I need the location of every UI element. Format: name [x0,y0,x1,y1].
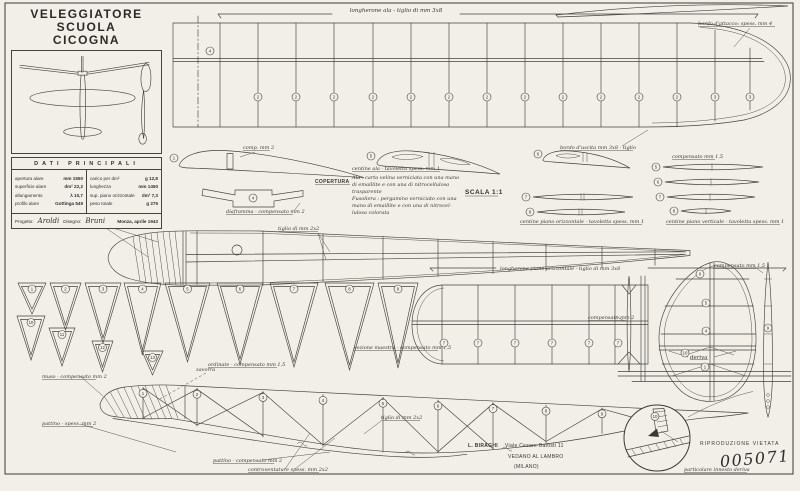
wing-plan-view: longherone ala - tiglio di mm 3x8 bordo … [173,5,790,127]
part-number-badge: 5 [184,285,192,293]
data-table: DATI PRINCIPALI apertura alaremm 1550sup… [11,157,162,229]
side-nose-note: muso - compensato mm 2 [42,374,107,380]
data-label: apertura alare [15,176,44,181]
part-number-badge: 9 [764,324,772,332]
title-line-2: CICOGNA [8,34,165,47]
part-number-badge: 2 [597,93,605,101]
part-number-badge: 2 [673,93,681,101]
covering-title: COPERTURA [315,179,349,185]
part-number-badge: 12 [99,344,107,352]
formers-note: ordinate - compensato mm 1,5 [208,362,285,368]
data-table-row: apertura alaremm 1550 [15,176,83,181]
part-number-badge: 3 [746,93,754,101]
fin-rib-sections [663,164,763,213]
data-table-row: lunghezzamm 1450 [90,184,158,189]
fin-root-section [618,276,640,372]
dihedral-brace-note: diaframma - compensato mm 2 [226,209,305,215]
fin-side-note: compensato mm 1,5 [714,263,765,269]
part-number-badge: 5 [652,163,660,171]
data-value: Gottinga 549 [55,201,83,206]
part-number: 10 [29,320,34,325]
part-number-badge: 2 [369,93,377,101]
part-number-badge: 2 [62,285,70,293]
fin-label: deriva [690,355,708,361]
part-number-badge: 10 [651,412,659,420]
progetto-label: Progetto: [15,219,34,224]
data-table-row: profilo alareGottinga 549 [15,201,83,206]
nose-block-hatching [133,231,181,285]
publisher-province: (MILANO) [514,464,539,470]
part-number-badge: 7 [511,339,519,347]
master-former-note: sezione maestra - compensato mm 1,5 [354,345,451,351]
part-number-badge: 2 [521,93,529,101]
credits-row: Progetto: Aroldi Disegno: Bruni Monza, a… [12,213,161,228]
wing-ribs [220,23,750,127]
stab-rib-sections [533,194,633,215]
title-line-1: VELEGGIATORE SCUOLA [8,8,165,34]
part-number: 10 [683,351,688,356]
part-number-badge: 10 [681,349,689,357]
disegno-label: Disegno: [63,219,81,224]
part-number-badge: 4 [702,327,710,335]
covering-note-line: trasparente [352,189,382,195]
part-number-badge: 7 [585,339,593,347]
fuselage-longeron-note: tiglio di mm 2x2 [278,226,319,232]
publisher-city: VEDANO AL LAMBRO [508,454,563,460]
tow-hook-hole [232,245,242,255]
data-value: λ 10,7 [70,193,83,198]
part-number-badge: 2 [483,93,491,101]
part-number-badge: 7 [440,339,448,347]
data-table-row: superficie alaredm² 22,2 [15,184,83,189]
bracing-note: controventature spess. mm 2x2 [248,467,328,473]
data-label: lunghezza [90,184,111,189]
data-value: dm² 22,2 [64,184,83,189]
covering-note-line: lulosa colorata [352,210,389,216]
part-number-badge: 2 [254,93,262,101]
data-label: carico per dm² [90,176,119,181]
data-table-row: carico per dm²g 12,8 [90,176,158,181]
part-number-badge: 2 [407,93,415,101]
disegno-signature: Bruni [85,217,105,225]
part-number-badge: 6 [534,150,542,158]
three-view-svg [12,51,161,151]
three-view-drawing [11,50,162,154]
plan-sheet: VELEGGIATORE SCUOLA CICOGNA DATI PRINCIP… [0,0,800,491]
place-date: Monza, aprile 1943 [117,219,158,224]
part-number-badge: 1 [28,285,36,293]
part-number-badge: 7 [614,339,622,347]
tail-sections: centine piano orizzontale - tavoletta sp… [520,154,784,225]
former-template [124,283,161,355]
former-template [325,283,374,370]
data-table-title: DATI PRINCIPALI [12,158,161,170]
data-label: sup. piano orizzontale [90,193,135,198]
part-number-badge: 4 [319,396,327,404]
part-number-badge: 2 [635,93,643,101]
root-rib-section [179,150,364,177]
part-number-badge: 5 [367,152,375,160]
part-number: 11 [60,332,65,337]
part-number-badge: 1 [701,363,709,371]
fin-rib-note: centine piano verticale - tavoletta spes… [666,219,784,225]
part-number-badge: 7 [548,339,556,347]
former-template [270,283,318,367]
data-value: mm 1450 [138,184,158,189]
wing-sections: comp. mm 2 diaframma - compensato mm 2 c… [179,130,648,216]
data-value: mm 1550 [63,176,83,181]
part-number-badge: 13 [149,354,157,362]
leading-edge-strip [556,5,788,17]
part-number-badge: 5 [379,399,387,407]
part-number-badge: 6 [236,285,244,293]
fin-rib-material-note: compensato mm 1,5 [672,154,723,160]
part-number-badge: 9 [394,285,402,293]
data-table-row: sup. piano orizzontaledm² 7,3 [90,193,158,198]
data-table-row: allungamentoλ 10,7 [15,193,83,198]
part-number-badge: 2 [292,93,300,101]
part-number-badge: 7 [656,193,664,201]
scale-note: SCALA 1:1 [465,189,503,196]
part-number-badge: 6 [654,178,662,186]
part-number-badge: 4 [249,194,257,202]
covering-note-line: di emaillite e con una di nitrocellulosa [352,182,449,188]
part-number-badge: 7 [489,405,497,413]
skid [113,419,467,458]
trailing-edge-note: bordo d'uscita mm 3x8 - tiglio [560,145,636,151]
part-number-badge: 8 [526,208,534,216]
data-value: dm² 7,3 [142,193,158,198]
part-number: 13 [150,355,155,360]
data-table-left-column: apertura alaremm 1550superficie alaredm²… [12,170,86,213]
progetto-signature: Aroldi [38,217,60,225]
side-longeron-note: tiglio di mm 2x2 [381,415,422,421]
data-table-row: peso totaleg 275 [90,201,158,206]
part-number-badge: 6 [696,270,704,278]
part-number: 12 [100,345,105,350]
part-number-badge: 2 [193,390,201,398]
part-number-badge: 8 [346,285,354,293]
part-number-badge: 9 [598,410,606,418]
part-number-badge: 7 [474,339,482,347]
part-number-badge: 2 [445,93,453,101]
publisher-address: Viale Cesare Battisti 11 [505,443,564,449]
part-number-badge: 3 [99,285,107,293]
part-number-badge: 5 [702,299,710,307]
builtup-rib-section-2 [543,151,630,168]
part-number-badge: 2 [330,93,338,101]
title-block: VELEGGIATORE SCUOLA CICOGNA DATI PRINCIP… [8,5,165,211]
data-label: allungamento [15,193,43,198]
covering-notes: Ala : carta velina verniciata con una ma… [351,175,459,216]
data-label: superficie alare [15,184,46,189]
page-title: VELEGGIATORE SCUOLA CICOGNA [8,8,165,47]
part-number-badge: 8 [670,207,678,215]
root-rib-note: comp. mm 2 [243,145,274,151]
wing-spar-note: longherone ala - tiglio di mm 3x8 [350,8,443,14]
part-number-badge: 1 [139,389,147,397]
part-number-badge: 10 [27,319,35,327]
part-number-badge: 11 [58,331,66,339]
covering-note-line: Fusoliera : pergamino verniciato con una [351,196,457,202]
part-number-badge: 3 [711,93,719,101]
data-value: g 12,8 [145,176,158,181]
data-value: g 275 [146,201,158,206]
wing-rib-material-note: centine ala - tavoletta spess. mm 1 [352,166,440,172]
part-number-badge: 8 [542,407,550,415]
ballast-note: zavorra [195,367,215,373]
part-number-badge: 4 [139,285,147,293]
part-number-badge: 7 [522,193,530,201]
data-table-right-column: carico per dm²g 12,8lunghezzamm 1450sup.… [86,170,161,213]
covering-note-line: Ala : carta velina verniciata con una ma… [351,175,459,181]
part-number: 10 [653,414,658,419]
part-number-badge: 7 [290,285,298,293]
data-label: peso totale [90,201,112,206]
stab-rib-note: centine piano orizzontale - tavoletta sp… [520,219,644,225]
part-number-badge: 6 [434,402,442,410]
former-template [217,283,263,364]
part-number-badge: 2 [559,93,567,101]
part-number-badge: 4 [206,47,214,55]
data-label: profilo alare [15,201,39,206]
former-template [165,283,210,362]
rights-notice: RIPRODUZIONE VIETATA [700,441,779,447]
detail-caption: particolare innesto deriva [684,467,750,473]
part-number-badge: 3 [259,393,267,401]
part-number-badge: 1 [170,154,178,162]
publisher-name: L. BIRAGHI [468,443,498,449]
stab-spar-note: longherone piano orizzontale - tiglio di… [500,266,620,272]
covering-note-line: mano di emaillite e con una di nitrocel- [352,203,452,209]
